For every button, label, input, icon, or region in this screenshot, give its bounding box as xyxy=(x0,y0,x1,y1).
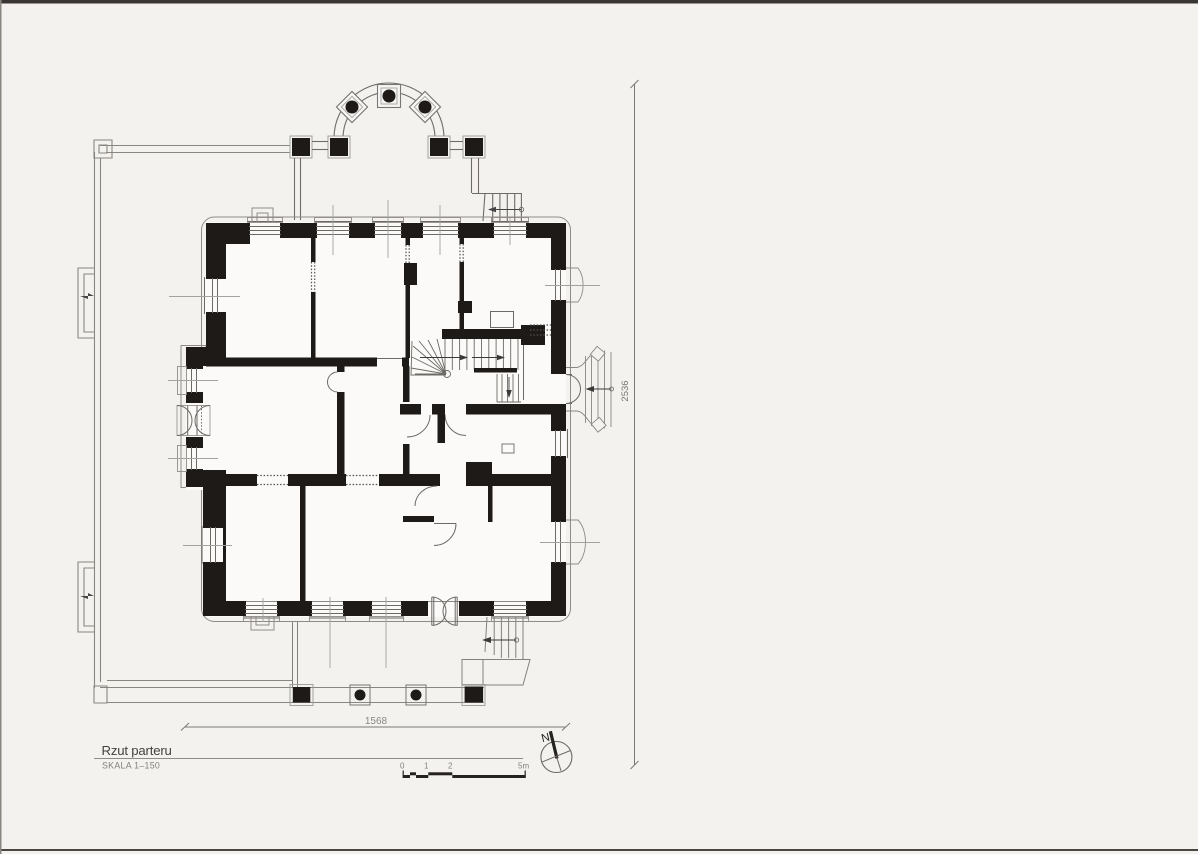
svg-text:5m: 5m xyxy=(518,762,529,771)
svg-text:2536: 2536 xyxy=(620,380,631,401)
svg-text:0: 0 xyxy=(400,762,405,771)
svg-text:SKALA 1–150: SKALA 1–150 xyxy=(102,761,160,771)
svg-text:2: 2 xyxy=(448,762,453,771)
svg-text:1568: 1568 xyxy=(365,716,388,727)
svg-text:Rzut parteru: Rzut parteru xyxy=(102,743,172,758)
svg-text:1: 1 xyxy=(424,762,429,771)
